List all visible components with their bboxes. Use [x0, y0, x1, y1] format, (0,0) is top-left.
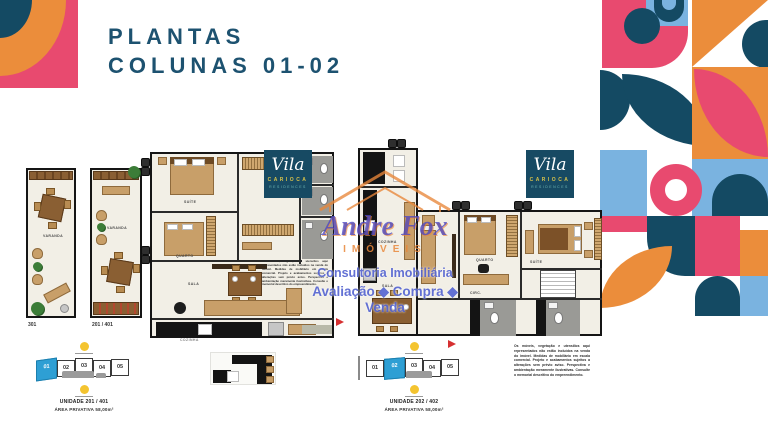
- chair: [116, 286, 125, 293]
- chaise: [286, 288, 302, 314]
- keyplan-unit-01: 01: [366, 360, 384, 377]
- geometric-pattern: [600, 0, 768, 316]
- room-label-varanda: VARANDA: [107, 226, 127, 230]
- plate: [232, 276, 238, 282]
- nightstand: [584, 222, 593, 230]
- pattern-half-disc-right: [742, 20, 768, 68]
- armchair: [32, 248, 43, 259]
- bunk-bed: [242, 224, 294, 236]
- sun-caption: [75, 353, 93, 355]
- dining-table: [38, 194, 66, 222]
- plant: [128, 166, 140, 178]
- ac-condenser: [141, 158, 150, 167]
- pattern-orange-small-tile: [740, 230, 768, 276]
- pillow: [467, 217, 477, 223]
- washer: [393, 155, 405, 167]
- vila-carioca-logo: Vila CARIOCA RESIDENCES: [526, 150, 574, 198]
- sink: [484, 302, 494, 309]
- sink: [305, 222, 313, 229]
- dryer: [393, 170, 405, 182]
- plant: [31, 302, 44, 315]
- room-label-sala: SALA: [382, 284, 393, 288]
- nightstand: [158, 157, 167, 165]
- sofa: [421, 230, 436, 284]
- bath-cabinet: [536, 300, 546, 336]
- wall: [237, 212, 239, 262]
- strip-label-201-401: 201 / 401: [92, 322, 113, 328]
- disclaimer-left: Os móveis, vegetação e utensílios aqui r…: [262, 260, 328, 288]
- keyplan-area-label: ÁREA PRIVATIVA 58,00m²: [36, 407, 132, 412]
- armchair: [96, 234, 107, 245]
- room-label-quarto: QUARTO: [476, 258, 494, 262]
- strip-label-301: 301: [28, 322, 36, 328]
- stove: [227, 371, 239, 382]
- wall: [237, 154, 239, 212]
- room-label-circ: CIRC.: [470, 291, 482, 295]
- pillow: [574, 226, 581, 237]
- bath-cabinet: [470, 300, 480, 336]
- room-label-suite: SUÍTE: [530, 260, 542, 264]
- wardrobe: [594, 218, 602, 260]
- laundry-cabinet: [363, 152, 385, 184]
- logo-residences-text: RESIDENCES: [526, 185, 574, 189]
- terrace-plan-301: VARANDA: [26, 168, 76, 318]
- room-label-quarto: QUARTO: [176, 254, 194, 258]
- floor-plan-right: QUARTO SUÍTE CIRC.: [416, 210, 602, 336]
- ac-condenser: [141, 167, 150, 176]
- corner-decoration: [0, 0, 78, 88]
- keyplan-side-marker: [358, 356, 360, 380]
- pattern-pink-ring: [650, 164, 702, 216]
- ac-condenser: [141, 246, 150, 255]
- title-line-2: COLUNAS 01-02: [108, 51, 344, 80]
- armchair: [32, 274, 43, 285]
- wall: [458, 212, 460, 298]
- room-label-suite: SUÍTE: [184, 200, 196, 204]
- nightstand: [584, 250, 593, 258]
- sun-icon: [410, 385, 419, 394]
- room-label-cozinha: COZINHA: [180, 338, 199, 342]
- ac-condenser: [397, 139, 406, 148]
- pillow: [574, 240, 581, 251]
- pillow: [192, 159, 205, 166]
- chair: [101, 266, 108, 275]
- keyplan-core: [96, 373, 106, 378]
- toilet: [320, 194, 328, 205]
- pillow: [174, 159, 187, 166]
- chair: [34, 202, 41, 211]
- keyplan-right: 01 02 03 04 05 UNIDADE 202 / 402 ÁREA PR…: [366, 342, 462, 412]
- wall: [299, 216, 334, 218]
- keyplan-unit-05: 05: [111, 359, 129, 376]
- plate: [377, 304, 383, 310]
- pillow: [182, 224, 193, 230]
- keyplan-unit-02: 02: [384, 357, 405, 380]
- keyplan-footprint: 01 02 03 04 05: [366, 356, 462, 382]
- desk: [242, 242, 272, 250]
- chair: [248, 265, 256, 271]
- floor-plan-right-wing: COZINHA SALA: [358, 148, 418, 336]
- kitchen-counter: [212, 322, 262, 337]
- plate: [391, 304, 397, 310]
- counter-shelf: [302, 325, 332, 334]
- plate: [403, 304, 409, 310]
- keyplan-unit-01: 01: [36, 358, 57, 382]
- stove: [198, 324, 212, 335]
- plate: [250, 276, 256, 282]
- pattern-circle: [624, 8, 660, 44]
- stove: [364, 220, 375, 231]
- appliance: [266, 366, 274, 373]
- logo-script-text: Vila: [264, 156, 312, 174]
- plant: [33, 262, 42, 271]
- page-title: PLANTAS COLUNAS 01-02: [108, 22, 344, 80]
- chair: [64, 200, 71, 209]
- chair: [232, 265, 240, 271]
- logo-script-text: Vila: [526, 156, 574, 174]
- pattern-blue-small-tile: [740, 276, 768, 316]
- toilet: [554, 312, 563, 324]
- sun-caption: [75, 396, 93, 398]
- keyplan-unit-label: UNIDADE 202 / 402: [366, 399, 462, 405]
- pattern-pink-tile: [695, 216, 740, 276]
- room-label-cozinha: COZINHA: [378, 240, 397, 244]
- keyplan-left: 01 02 03 04 05 UNIDADE 201 / 401 ÁREA PR…: [36, 342, 132, 412]
- appliance: [266, 356, 274, 363]
- chair: [390, 290, 398, 296]
- chair: [376, 290, 384, 296]
- wall: [520, 212, 522, 298]
- pattern-leaf-orange: [600, 246, 672, 308]
- toilet: [320, 230, 328, 241]
- fridge: [268, 322, 284, 336]
- ac-condenser: [452, 201, 461, 210]
- appliance: [266, 376, 274, 383]
- sun-caption: [405, 396, 423, 398]
- keyplan-core: [406, 371, 432, 378]
- flyer-canvas: { "title": {"line1": "PLANTAS", "line2":…: [0, 0, 768, 432]
- pattern-half-disc-bottom-2: [695, 276, 740, 316]
- logo-residences-text: RESIDENCES: [264, 185, 312, 189]
- planter: [29, 171, 73, 180]
- logo-carioca-text: CARIOCA: [264, 177, 312, 183]
- ac-condenser: [141, 255, 150, 264]
- dining-table: [372, 298, 412, 324]
- toilet: [320, 163, 328, 174]
- dining-table: [106, 258, 134, 286]
- armchair: [422, 215, 435, 226]
- keyplan-footprint: 01 02 03 04 05: [36, 356, 132, 382]
- chair: [46, 188, 55, 195]
- logo-carioca-text: CARIOCA: [526, 177, 574, 183]
- desk-chair: [478, 264, 489, 273]
- sun-caption: [405, 353, 423, 355]
- chair: [133, 264, 140, 273]
- sun-icon: [410, 342, 419, 351]
- ac-condenser: [388, 139, 397, 148]
- entrance-arrow: [336, 318, 344, 326]
- keyplan-core: [62, 371, 94, 378]
- chair: [48, 222, 57, 229]
- ac-condenser: [514, 201, 523, 210]
- pillow: [481, 217, 491, 223]
- wardrobe: [206, 216, 216, 256]
- bed-blanket: [540, 228, 568, 250]
- keyplan-unit-05: 05: [441, 359, 459, 376]
- sink: [548, 302, 558, 309]
- room-label-sala: SALA: [188, 282, 199, 286]
- wall: [152, 318, 334, 320]
- disclaimer-right: Os móveis, vegetação e utensílios aqui r…: [514, 344, 590, 392]
- bar-counter: [404, 202, 415, 260]
- pillow: [167, 224, 178, 230]
- keyplan-unit-label: UNIDADE 201 / 401: [36, 399, 132, 405]
- wardrobe: [506, 215, 518, 257]
- bar-counter: [93, 302, 139, 315]
- terrace-plan-201-401: VARANDA: [90, 168, 142, 318]
- fridge: [363, 268, 376, 281]
- closet-shelves: [540, 270, 576, 298]
- desk: [463, 274, 509, 285]
- title-line-1: PLANTAS: [108, 22, 344, 51]
- tv-panel: [452, 234, 456, 278]
- ac-condenser: [523, 201, 532, 210]
- sun-icon: [80, 342, 89, 351]
- wall: [152, 211, 239, 213]
- chair: [114, 252, 123, 259]
- wall: [360, 186, 416, 188]
- plant: [97, 223, 105, 231]
- side-table: [60, 304, 69, 313]
- ac-condenser: [461, 201, 470, 210]
- nightstand: [217, 157, 226, 165]
- console-table: [102, 186, 130, 195]
- chair: [376, 326, 384, 332]
- lounge-chair: [43, 282, 71, 303]
- room-label-varanda: VARANDA: [43, 234, 63, 238]
- vila-carioca-logo: Vila CARIOCA RESIDENCES: [264, 150, 312, 198]
- pouf: [174, 302, 186, 314]
- sun-icon: [80, 385, 89, 394]
- toilet: [490, 312, 499, 324]
- dresser: [525, 230, 534, 254]
- kitchen-detail-plan: [210, 352, 276, 385]
- armchair: [96, 210, 107, 221]
- keyplan-area-label: ÁREA PRIVATIVA 58,00m²: [366, 407, 462, 412]
- pattern-pink-strip: [600, 216, 650, 232]
- pattern-blue-tile: [600, 150, 647, 216]
- chair: [390, 326, 398, 332]
